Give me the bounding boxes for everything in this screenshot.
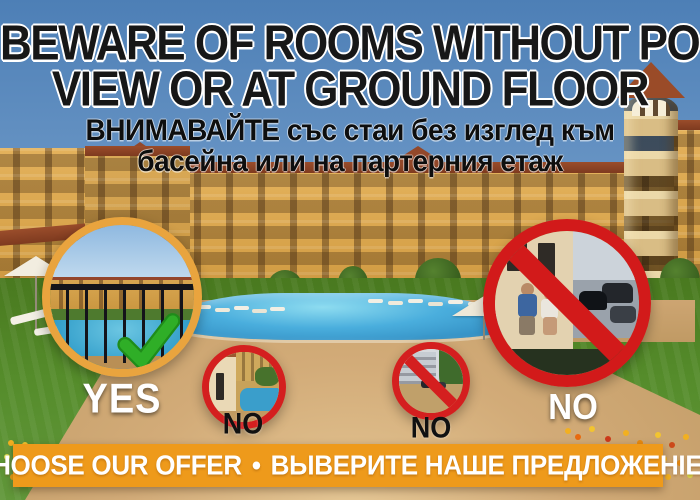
check-icon	[116, 313, 180, 369]
street-view-photo	[399, 349, 463, 413]
parked-car	[610, 306, 636, 323]
cta-translation: ВЫВЕРИТЕ НАШЕ ПРЕДЛОЖЕНIЕ	[271, 449, 700, 482]
headline-line2: VIEW OR AT GROUND FLOOR	[0, 62, 700, 118]
flower-bed	[565, 428, 571, 434]
yes-label: YES	[62, 376, 182, 423]
terrace-parking-photo	[495, 231, 639, 375]
umbrella-pole	[35, 276, 37, 330]
no-label: NO	[533, 386, 613, 428]
cta-separator: •	[252, 449, 261, 482]
subheadline-line1: ВНИМАВАЙТЕ със стаи без изглед към	[0, 114, 700, 148]
no-label: NO	[203, 407, 283, 441]
subheadline-line2: басейна или на партерния етаж	[0, 145, 700, 179]
cta-text: CHOOSE OUR OFFER	[0, 449, 242, 482]
no-label: NO	[391, 411, 471, 445]
person	[518, 294, 537, 317]
no-large-terrace-circle	[483, 219, 651, 387]
promo-banner: YES NO NO	[0, 0, 700, 500]
cta-banner[interactable]: CHOOSE OUR OFFER • ВЫВЕРИТЕ НАШЕ ПРЕДЛОЖ…	[13, 444, 663, 487]
no-street-view-circle	[392, 342, 470, 420]
yes-example-circle	[42, 217, 202, 377]
sun-loungers	[368, 299, 383, 303]
